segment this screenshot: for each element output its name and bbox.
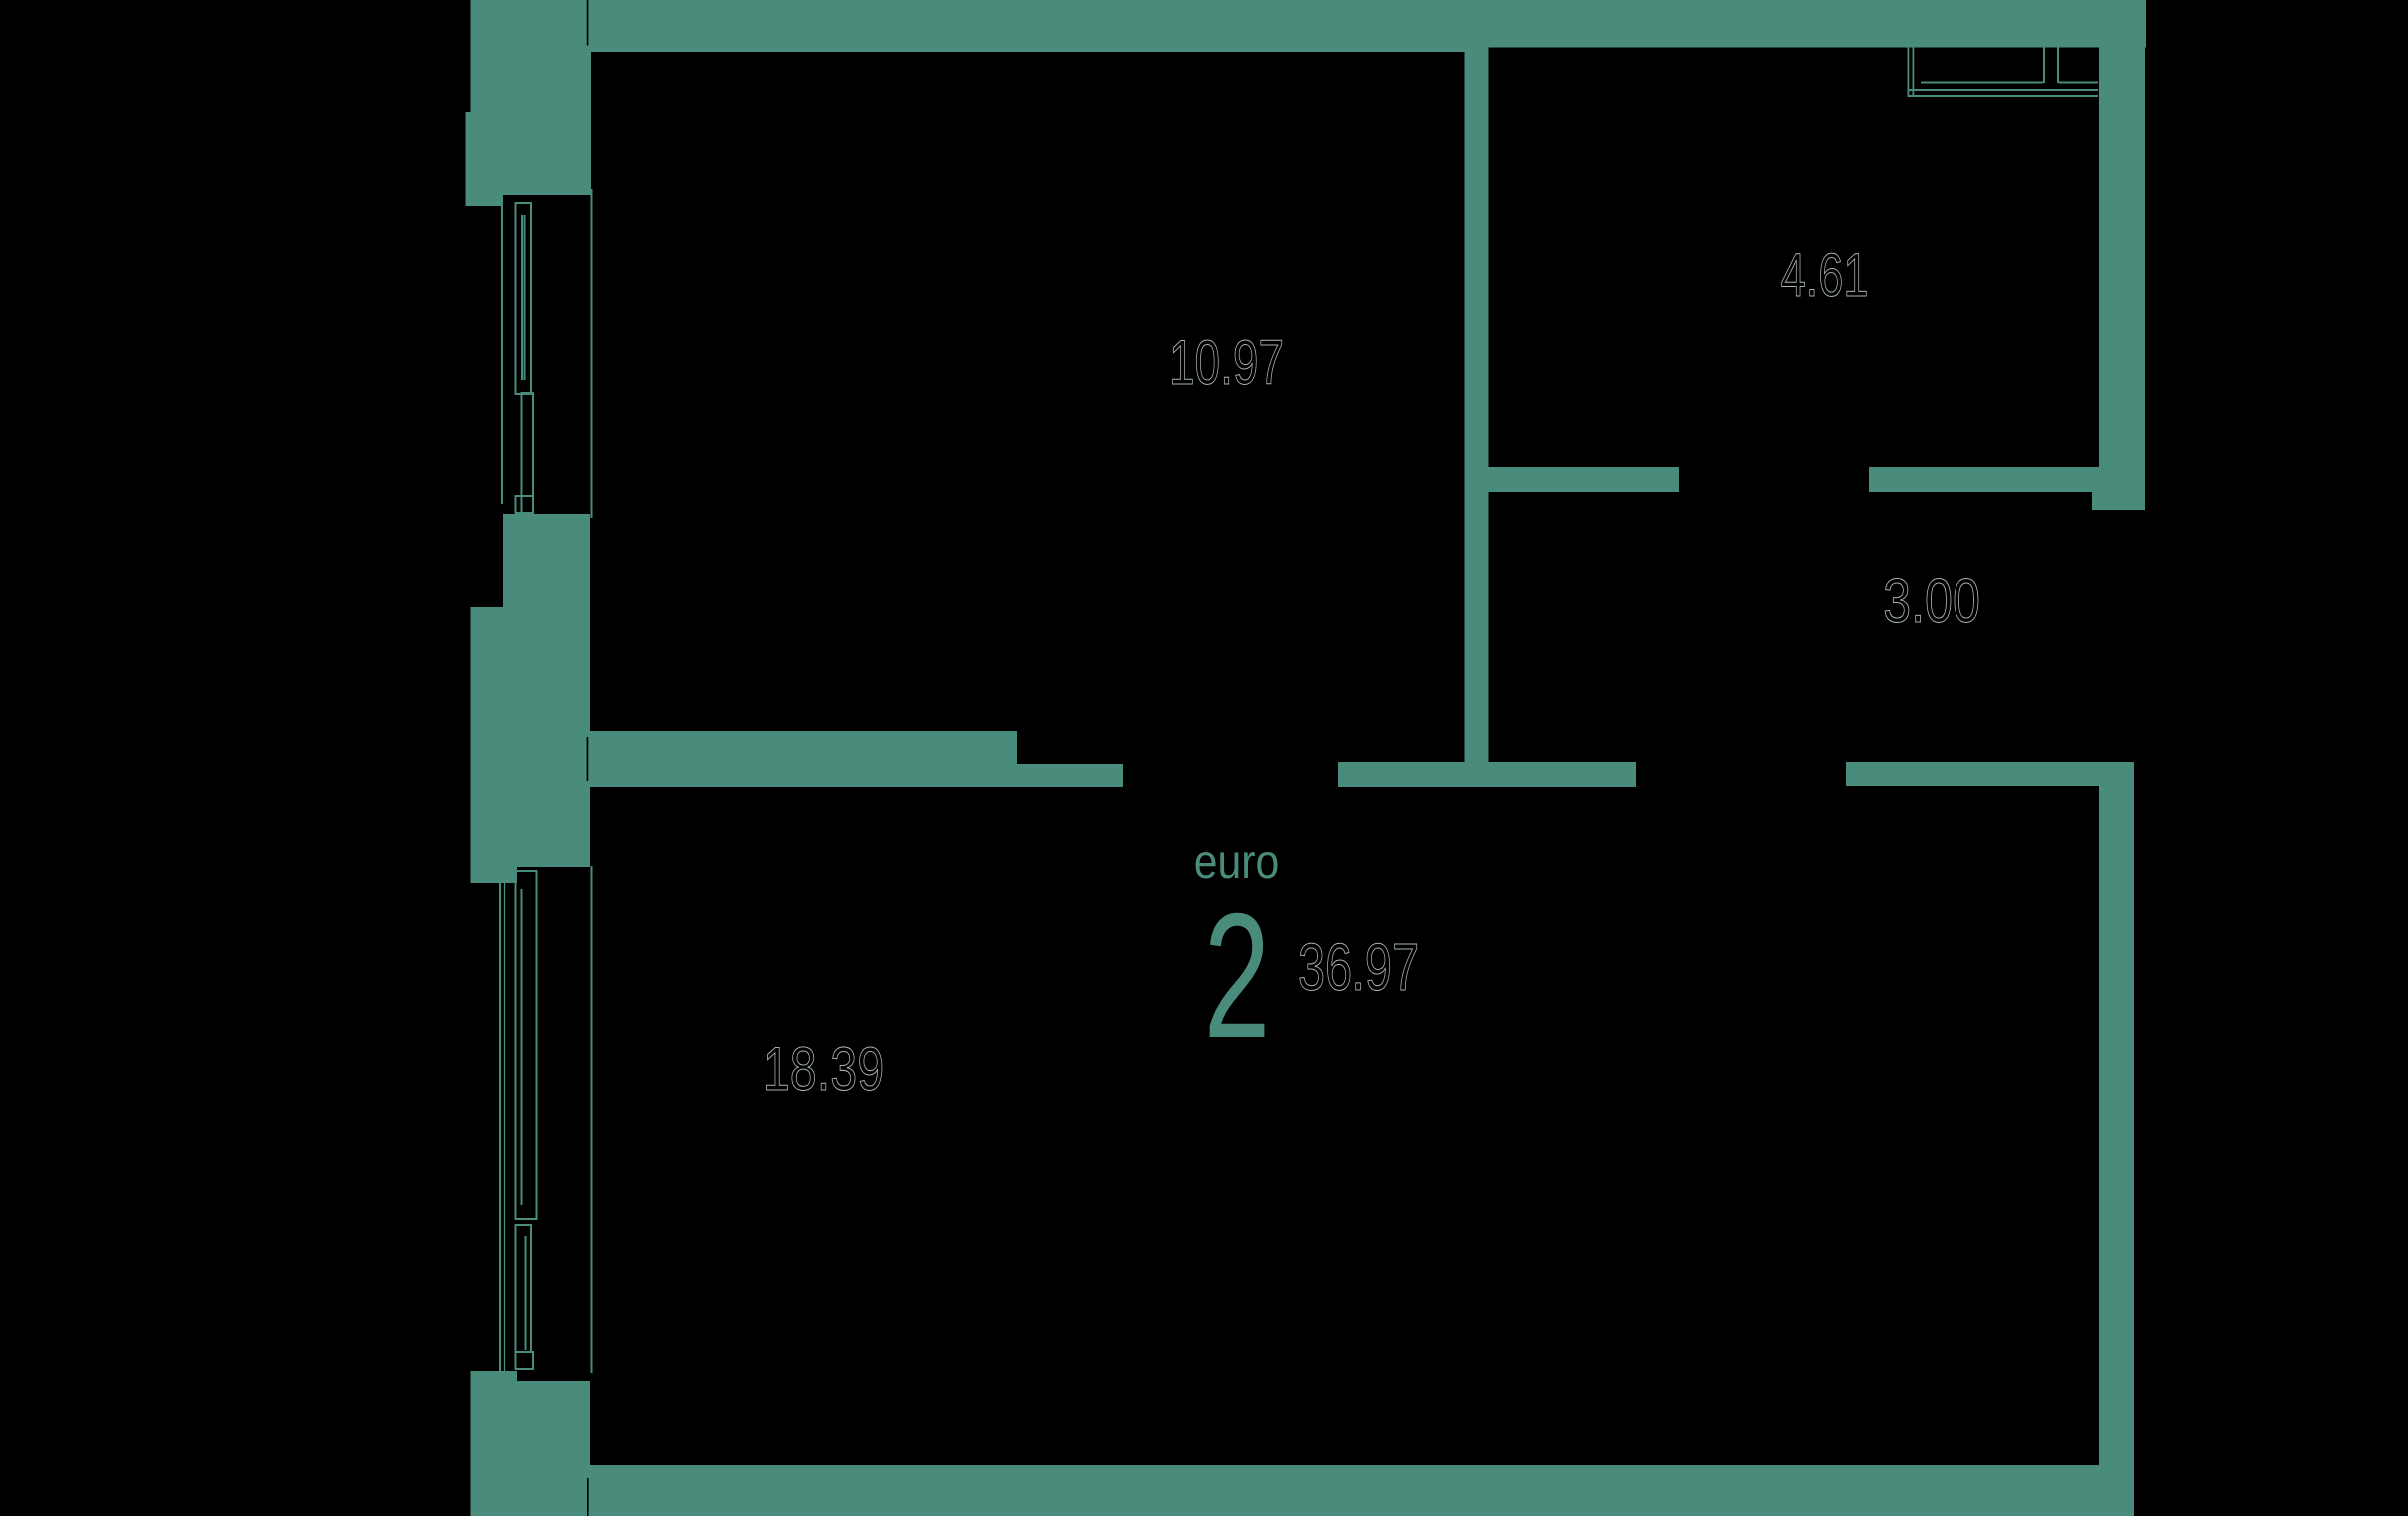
svg-text:2: 2: [1204, 878, 1271, 1075]
svg-text:4.61: 4.61: [1781, 241, 1869, 309]
svg-text:3.00: 3.00: [1883, 566, 1980, 635]
svg-text:36.97: 36.97: [1298, 931, 1419, 1005]
svg-text:10.97: 10.97: [1169, 327, 1284, 398]
svg-text:18.39: 18.39: [763, 1034, 884, 1104]
